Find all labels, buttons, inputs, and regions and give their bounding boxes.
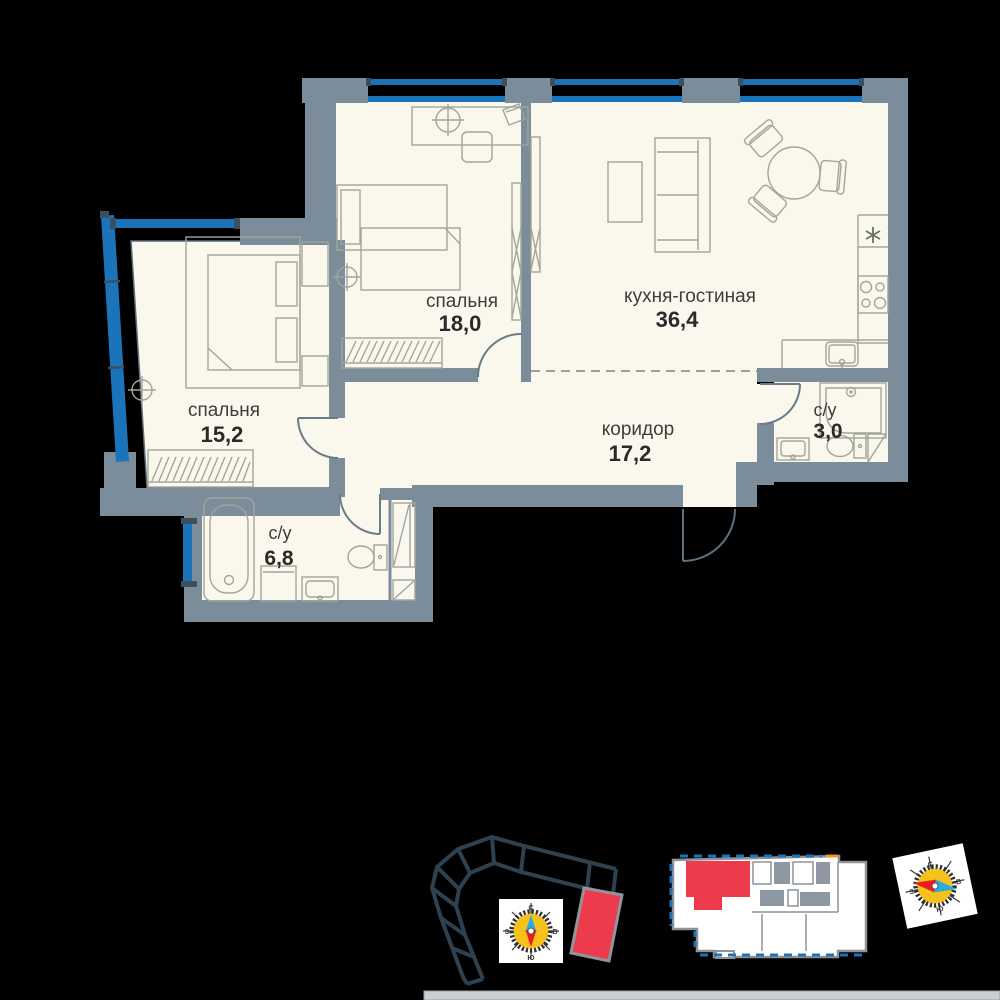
room-label-bathroom-6: с/у	[268, 523, 291, 543]
wall-bath3-left	[757, 423, 774, 485]
room-area-corridor: 17,2	[609, 441, 652, 466]
room-area-bedroom-18: 18,0	[439, 311, 482, 336]
floor-corridor	[345, 368, 757, 488]
wall-bath6-top	[380, 488, 415, 500]
room-label-kitchen: кухня-гостиная	[624, 286, 756, 307]
mullion-tick	[104, 281, 120, 282]
threshold	[683, 485, 736, 507]
compass-north-label: С	[528, 905, 533, 912]
threshold	[756, 384, 776, 424]
room-area-bedroom-15: 15,2	[201, 422, 244, 447]
floorplan-page: спальня 18,0 кухня-гостиная 36,4 спальня…	[0, 0, 1000, 1000]
wall-bath6-right	[415, 488, 433, 622]
compass-west-label: З	[505, 929, 510, 936]
wall-pier	[682, 78, 740, 103]
threshold	[340, 486, 382, 500]
window-bedroom15-side	[101, 215, 129, 462]
room-label-bedroom-15: спальня	[188, 400, 260, 421]
window-bay	[550, 79, 684, 85]
compass-east-label: В	[552, 929, 557, 936]
room-label-corridor: коридор	[602, 419, 675, 440]
floor-key-plan	[671, 856, 866, 958]
room-label-bedroom-18: спальня	[426, 291, 498, 312]
room-area-bathroom-3: 3,0	[813, 420, 842, 443]
compass-south-label: Ю	[527, 955, 534, 962]
room-label-bathroom-3: с/у	[813, 400, 836, 420]
window-bay	[366, 79, 507, 85]
wall-entrance-jamb	[736, 462, 757, 507]
window-bay	[552, 96, 682, 102]
window-bay	[740, 96, 862, 102]
building-footprint-map: С В Ю З	[432, 837, 622, 984]
window-bay	[368, 96, 505, 102]
wall-bedroom15-top	[240, 218, 337, 245]
floor-main-block	[336, 100, 888, 371]
compass-icon-rotated: С В Ю З	[892, 843, 977, 928]
wall-partition	[521, 100, 531, 382]
mullion-tick	[108, 367, 124, 368]
room-area-bathroom-6: 6,8	[264, 547, 294, 570]
unit-location-marker[interactable]	[571, 888, 622, 961]
window-bedroom15-top	[112, 219, 240, 228]
floorplan-canvas: спальня 18,0 кухня-гостиная 36,4 спальня…	[0, 0, 1000, 1000]
door-entrance	[683, 509, 735, 561]
wall-right	[888, 78, 908, 482]
wall-bedroom15-right	[330, 240, 345, 418]
wall-bath3-left	[757, 368, 774, 382]
wall-bedroom18-south	[330, 368, 478, 382]
wall-pier	[505, 78, 552, 103]
floors	[131, 100, 888, 601]
threshold	[477, 368, 522, 382]
room-area-kitchen: 36,4	[656, 307, 700, 332]
floor-plan: спальня 18,0 кухня-гостиная 36,4 спальня…	[100, 78, 908, 622]
bottom-edge-strip	[424, 991, 1000, 1000]
compass-icon: С В Ю З	[499, 899, 563, 963]
threshold	[328, 418, 347, 458]
wall-bath3-top	[757, 368, 888, 382]
window-bathroom6	[183, 524, 192, 582]
wall-entrance	[412, 485, 683, 507]
window-bay	[738, 79, 864, 85]
wall-bedroom15-bottom	[100, 488, 340, 516]
wall-bath6-bottom	[184, 600, 433, 622]
